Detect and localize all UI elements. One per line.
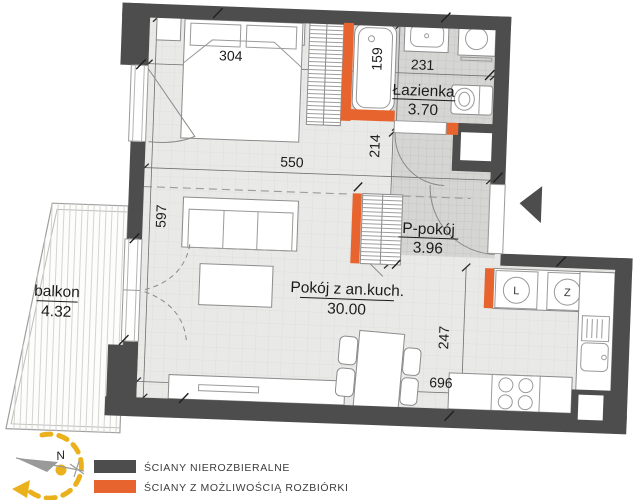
compass-needle — [16, 458, 84, 477]
chair — [402, 347, 421, 375]
legend-swatch-removable — [94, 480, 136, 493]
dim-kitchen-depth: 247 — [435, 325, 452, 349]
dining-table — [353, 330, 405, 412]
dim-living-length: 597 — [152, 204, 169, 228]
dim-bathtub-length: 159 — [368, 47, 385, 71]
chair — [399, 377, 418, 405]
chair — [335, 368, 355, 397]
compass-north-label: N — [55, 448, 67, 464]
hallway-name: P-pokój — [402, 220, 455, 239]
nightstand-left — [156, 16, 181, 41]
shaft-opening-kitchen — [578, 395, 604, 421]
kitchen-counter-bottom — [448, 373, 572, 413]
kitchen-counter-right — [576, 272, 616, 397]
floor-plan-page: L Z — [0, 0, 637, 500]
wardrobe-bedroom — [306, 20, 344, 126]
legend-swatch-fixed — [94, 460, 136, 473]
toilet — [451, 85, 493, 115]
legend-label-removable: ŚCIANY Z MOŻLIWOŚCIĄ ROZBIÓRKI — [144, 481, 349, 494]
legend-item-fixed-walls: ŚCIANY NIEROZBIERALNE — [94, 460, 290, 474]
legend-item-removable-walls: ŚCIANY Z MOŻLIWOŚCIĄ ROZBIÓRKI — [94, 480, 349, 494]
floor-plan-svg: L Z — [0, 0, 637, 500]
bathroom-area: 3.70 — [408, 101, 439, 119]
legend-label-fixed: ŚCIANY NIEROZBIERALNE — [144, 461, 290, 474]
sofa — [182, 197, 299, 251]
dim-bottom-width: 696 — [429, 374, 453, 391]
balcony-area: 4.32 — [41, 303, 72, 321]
compass-arc-arrowhead — [12, 480, 30, 498]
chair — [338, 336, 358, 365]
bathroom-name: Łazienka — [392, 82, 455, 101]
living-room-area: 30.00 — [327, 300, 367, 318]
entrance-arrow-icon — [519, 185, 542, 223]
balcony-name: balkon — [34, 283, 80, 302]
hallway-area: 3.96 — [412, 239, 443, 257]
coffee-table — [199, 264, 273, 308]
appliance-letter-dishwasher: Z — [564, 287, 571, 299]
appliance-letter-fridge: L — [513, 285, 520, 297]
dim-bathroom-width: 231 — [411, 56, 435, 73]
shaft-opening — [460, 132, 492, 161]
dim-bedroom-width: 304 — [219, 47, 243, 64]
dim-living-width: 550 — [280, 154, 304, 171]
plan-rotated-group: L Z — [6, 0, 637, 451]
legend: ŚCIANY NIEROZBIERALNE ŚCIANY Z MOŻLIWOŚC… — [94, 460, 349, 494]
compass-icon: N — [12, 434, 84, 498]
dim-hallway-length: 214 — [366, 134, 383, 158]
